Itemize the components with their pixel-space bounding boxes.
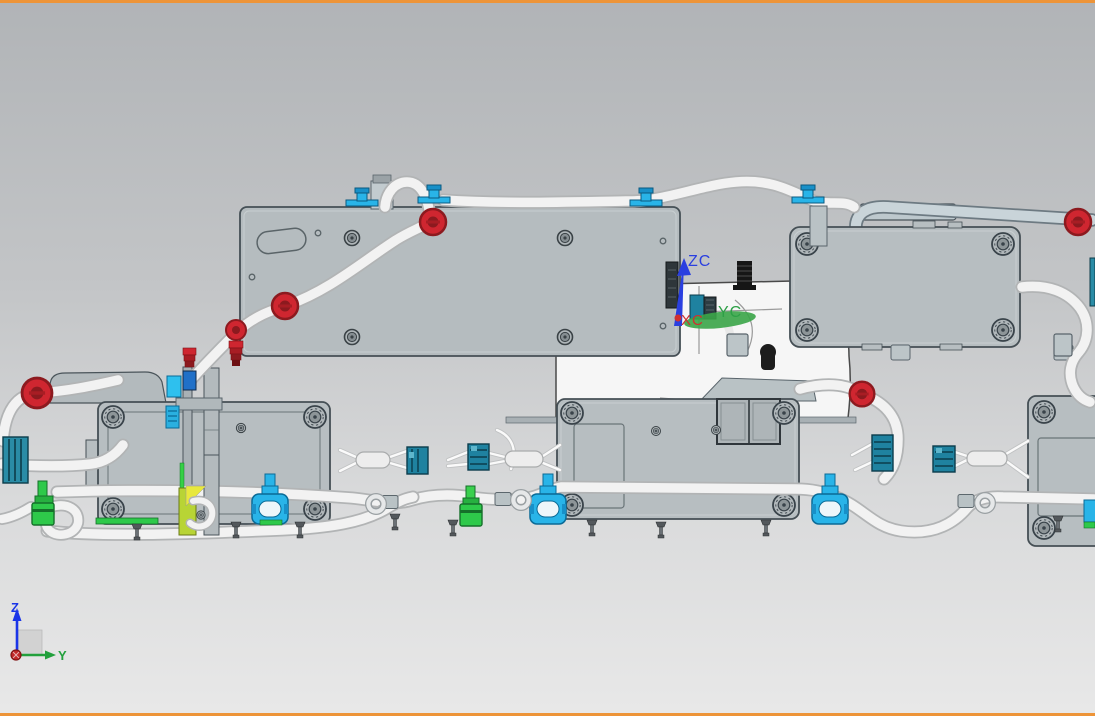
ribbed-stud[interactable] (733, 261, 756, 290)
wcs-xc-label: XC (681, 312, 704, 329)
view-triad-y-arrowhead (45, 651, 56, 660)
module-mount[interactable] (773, 402, 795, 424)
view-triad-z-label: Z (11, 600, 19, 615)
grommet-red-drop[interactable] (850, 382, 875, 407)
housing-tab-left (506, 417, 558, 423)
connector-teal-block-left[interactable] (3, 437, 28, 483)
wcs-zc-label: ZC (688, 253, 711, 270)
module-mount[interactable] (561, 402, 583, 424)
module-tab (913, 221, 935, 228)
housing-cylinder[interactable] (727, 334, 748, 356)
panel-screw[interactable] (345, 231, 360, 246)
connector-green-left[interactable] (32, 481, 54, 525)
housing-knob-stem (761, 352, 775, 370)
grommet-red-conduit[interactable] (1065, 209, 1091, 235)
panel-edge-connector[interactable] (666, 262, 678, 308)
module-footpad-green (96, 518, 158, 524)
view-triad-plane (18, 630, 42, 655)
clip-blue-buckle[interactable] (812, 474, 848, 524)
band-clamp[interactable] (495, 493, 511, 506)
connector-teal-3[interactable] (872, 435, 893, 471)
panel-screw[interactable] (558, 330, 573, 345)
module-mount[interactable] (102, 498, 124, 520)
bracket-red-bellows (183, 348, 196, 367)
conduit-post (810, 206, 827, 246)
module-tab (940, 344, 962, 350)
tube-sleeve[interactable] (505, 451, 543, 467)
connector-blue[interactable] (183, 371, 196, 390)
module-mount[interactable] (1033, 517, 1055, 539)
module-tab (948, 222, 962, 228)
housing-tab-right (798, 417, 856, 423)
view-triad: Z Y (11, 600, 67, 663)
panel-screw[interactable] (345, 330, 360, 345)
wcs-yc-label: YC (718, 304, 742, 321)
module-mount[interactable] (992, 233, 1014, 255)
connector-teal-1[interactable] (407, 447, 428, 474)
panel-screw[interactable] (558, 231, 573, 246)
push-pin[interactable] (587, 520, 597, 536)
module-mount[interactable] (304, 406, 326, 428)
push-pin[interactable] (656, 522, 666, 538)
module-screw[interactable] (236, 423, 245, 432)
push-pin[interactable] (390, 514, 400, 530)
clip-blue-right-module[interactable] (1084, 500, 1095, 528)
clip-footpad-green (260, 520, 282, 525)
module-tab (862, 344, 882, 350)
cad-viewport[interactable]: ZC YC XC Z Y (0, 0, 1095, 716)
connector-teal-edge[interactable] (1090, 258, 1095, 306)
grommet-red-left[interactable] (22, 378, 52, 408)
module-window[interactable] (717, 399, 780, 444)
module-foot (891, 345, 910, 360)
tube-sleeve[interactable] (967, 451, 1007, 466)
module-screw[interactable] (712, 426, 721, 435)
tube-sleeve[interactable] (356, 452, 390, 468)
module-mount[interactable] (1033, 401, 1055, 423)
connector-cyan-top[interactable] (167, 376, 181, 397)
bracket-screw[interactable] (197, 511, 205, 519)
grommet-red-top[interactable] (420, 209, 446, 235)
push-pin[interactable] (448, 520, 458, 536)
module-mount[interactable] (102, 406, 124, 428)
push-pin[interactable] (761, 520, 771, 536)
panel-corner-grommet[interactable] (226, 320, 246, 366)
connector-cyan-mid[interactable] (166, 406, 179, 428)
module-mount[interactable] (992, 319, 1014, 341)
view-triad-y-label: Y (58, 648, 67, 663)
module-screw[interactable] (652, 427, 661, 436)
grommet-red-panel[interactable] (272, 293, 298, 319)
center-module[interactable] (557, 399, 799, 519)
connector-teal-2[interactable] (468, 444, 489, 470)
cad-scene[interactable]: ZC YC XC Z Y (0, 3, 1095, 713)
module-mount[interactable] (796, 319, 818, 341)
far-right-cylinder[interactable] (1054, 334, 1072, 356)
band-clamp[interactable] (958, 495, 974, 508)
connector-teal-4[interactable] (933, 446, 955, 472)
panel-top-stub-cap (373, 175, 391, 183)
module-mount[interactable] (773, 494, 795, 516)
